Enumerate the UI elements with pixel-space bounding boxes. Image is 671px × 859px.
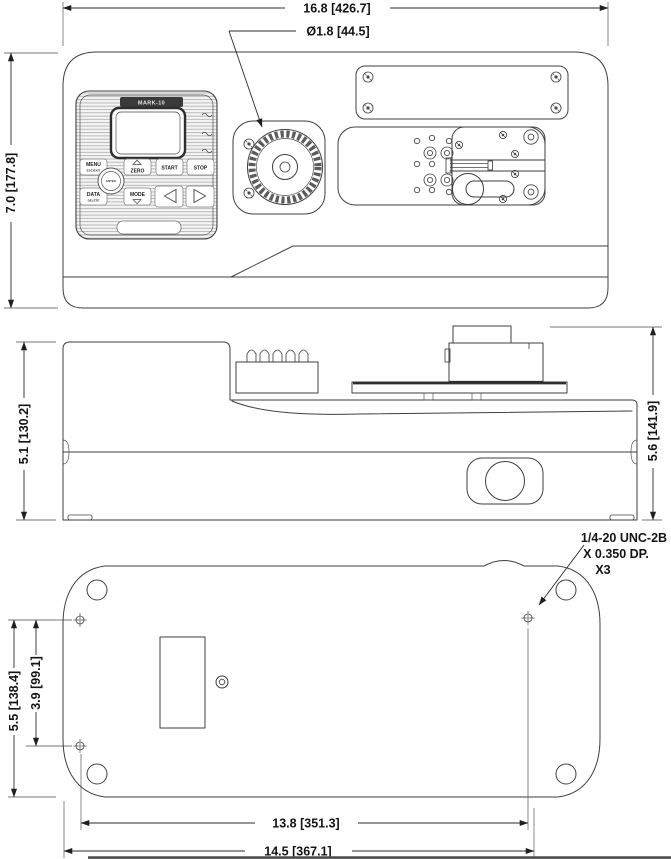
clamp-block (452, 127, 545, 205)
rear-plate (356, 66, 568, 119)
terminal-pin-icon (273, 350, 282, 362)
foot-pad (68, 515, 92, 520)
note-line: X3 (595, 563, 610, 577)
dial-plate (233, 121, 325, 214)
center-hole-outer (216, 676, 228, 688)
hole-icon (414, 161, 419, 166)
dial-outer-ring (248, 130, 323, 205)
terminal-pin-icon (247, 350, 256, 362)
boss-icon (524, 185, 538, 199)
hole-icon (429, 135, 434, 140)
enter-label: ENTER (106, 179, 115, 183)
dial-side (445, 326, 543, 383)
grommet-icon (424, 174, 436, 186)
dim-label: 7.0 [177.8] (4, 153, 18, 213)
leader-line (229, 31, 262, 127)
mode-label: MODE (130, 192, 146, 198)
foot-hole-icon (87, 764, 107, 784)
display-bezel (111, 108, 185, 158)
plate-tab (472, 393, 481, 400)
dim-label: 13.8 [351.3] (272, 817, 339, 831)
apron-curve (232, 401, 632, 414)
dial-inner-ring (257, 139, 314, 196)
dim-top-depth: 7.0 [177.8] (4, 53, 58, 308)
grip-platform (338, 127, 545, 205)
foot-hole-icon (556, 764, 576, 784)
hole-icon (429, 187, 434, 192)
hole-icon (446, 189, 451, 194)
brand-logo-text: MARK-10 (138, 101, 165, 107)
threaded-hole-icon (521, 611, 535, 625)
dial-knurl-ring (252, 134, 318, 200)
grommet-icon (424, 147, 436, 159)
side-port (467, 458, 543, 504)
dial-hub-center (280, 162, 290, 172)
threaded-hole-icon (73, 739, 87, 753)
menu-sub-label: ESC/EXIT (87, 169, 101, 173)
hole-icon (429, 161, 434, 166)
dim-label: 5.5 [138.4] (7, 671, 21, 731)
foot-pad (610, 515, 634, 520)
screw-icon (363, 72, 373, 82)
screw-icon (244, 188, 254, 198)
rear-plate-outline (356, 66, 568, 119)
plate-tab (424, 393, 433, 400)
screw-icon (455, 141, 462, 148)
dim-label: 3.9 [99.1] (29, 656, 43, 710)
platform-outline (338, 127, 545, 205)
data-label: DATA (87, 192, 101, 198)
hole-icon (446, 138, 451, 143)
terminal-pin-icon (260, 350, 269, 362)
menu-label: MENU (86, 162, 101, 168)
body-outline (63, 342, 637, 520)
dial-hub (273, 155, 298, 180)
dial-cap (453, 326, 511, 343)
grommet-icon (441, 147, 453, 159)
thread-note: 1/4-20 UNC-2B X 0.350 DP. X3 (539, 531, 667, 605)
side-port-hole (486, 462, 525, 501)
zero-label: ZERO (131, 169, 145, 175)
rod-cap (488, 161, 493, 170)
screw-icon (499, 195, 506, 202)
lever-handle (466, 181, 514, 197)
dim-dial-diameter: Ø1.8 [44.5] (229, 25, 370, 128)
note-line: X 0.350 DP. (583, 547, 649, 561)
threaded-hole-icon (73, 613, 87, 627)
dim-side-overall-height: 5.6 [141.9] (550, 327, 662, 520)
terminal-pin-icon (299, 350, 308, 362)
dim-label: Ø1.8 [44.5] (306, 25, 369, 39)
base-plate-side (352, 382, 567, 400)
technical-drawing: MARK-10 MENU ESC/EXIT ZERO START STOP DA… (0, 0, 671, 859)
dim-label: 5.6 [141.9] (646, 401, 660, 461)
foot-hole-icon (556, 580, 576, 600)
note-line: 1/4-20 UNC-2B (581, 531, 667, 545)
boss-icon (524, 130, 538, 144)
dim-label: 16.8 [426.7] (303, 2, 370, 16)
screw-icon (551, 72, 561, 82)
side-view: 5.1 [130.2] 5.6 [141.9] (16, 326, 662, 520)
stop-label: STOP (194, 166, 208, 172)
body-outline (63, 561, 600, 798)
deck-ramp-line (231, 246, 293, 277)
hole-icon (414, 187, 419, 192)
foot-hole-icon (87, 580, 107, 600)
battery-door (160, 637, 205, 728)
dim-side-body-height: 5.1 [130.2] (16, 342, 56, 520)
screw-icon (363, 103, 373, 113)
terminal-body (236, 362, 318, 393)
bottom-view: 1/4-20 UNC-2B X 0.350 DP. X3 5.5 [138.4]… (7, 531, 671, 859)
terminal-pin-icon (286, 350, 295, 362)
screw-icon (551, 103, 561, 113)
center-hole-inner (219, 679, 225, 685)
drawing-page: MARK-10 MENU ESC/EXIT ZERO START STOP DA… (0, 0, 671, 859)
screw-icon (511, 150, 518, 157)
dial-assembly (233, 121, 325, 214)
start-label: START (161, 166, 177, 172)
control-panel: MARK-10 MENU ESC/EXIT ZERO START STOP DA… (76, 91, 217, 239)
hole-icon (414, 138, 419, 143)
data-sub-label: DELETE (88, 199, 100, 203)
leader-line (539, 545, 584, 605)
grommet-icon (441, 174, 453, 186)
dim-holes-inner: 3.9 [99.1] (26, 620, 72, 746)
panel-bottom-bar (117, 221, 181, 234)
dim-width-inner: 13.8 [351.3] (81, 628, 528, 831)
top-view: MARK-10 MENU ESC/EXIT ZERO START STOP DA… (4, 2, 608, 309)
screw-icon (499, 131, 506, 138)
lever-hub (453, 174, 484, 205)
dim-label: 5.1 [130.2] (17, 404, 31, 464)
terminal-block (236, 350, 318, 393)
